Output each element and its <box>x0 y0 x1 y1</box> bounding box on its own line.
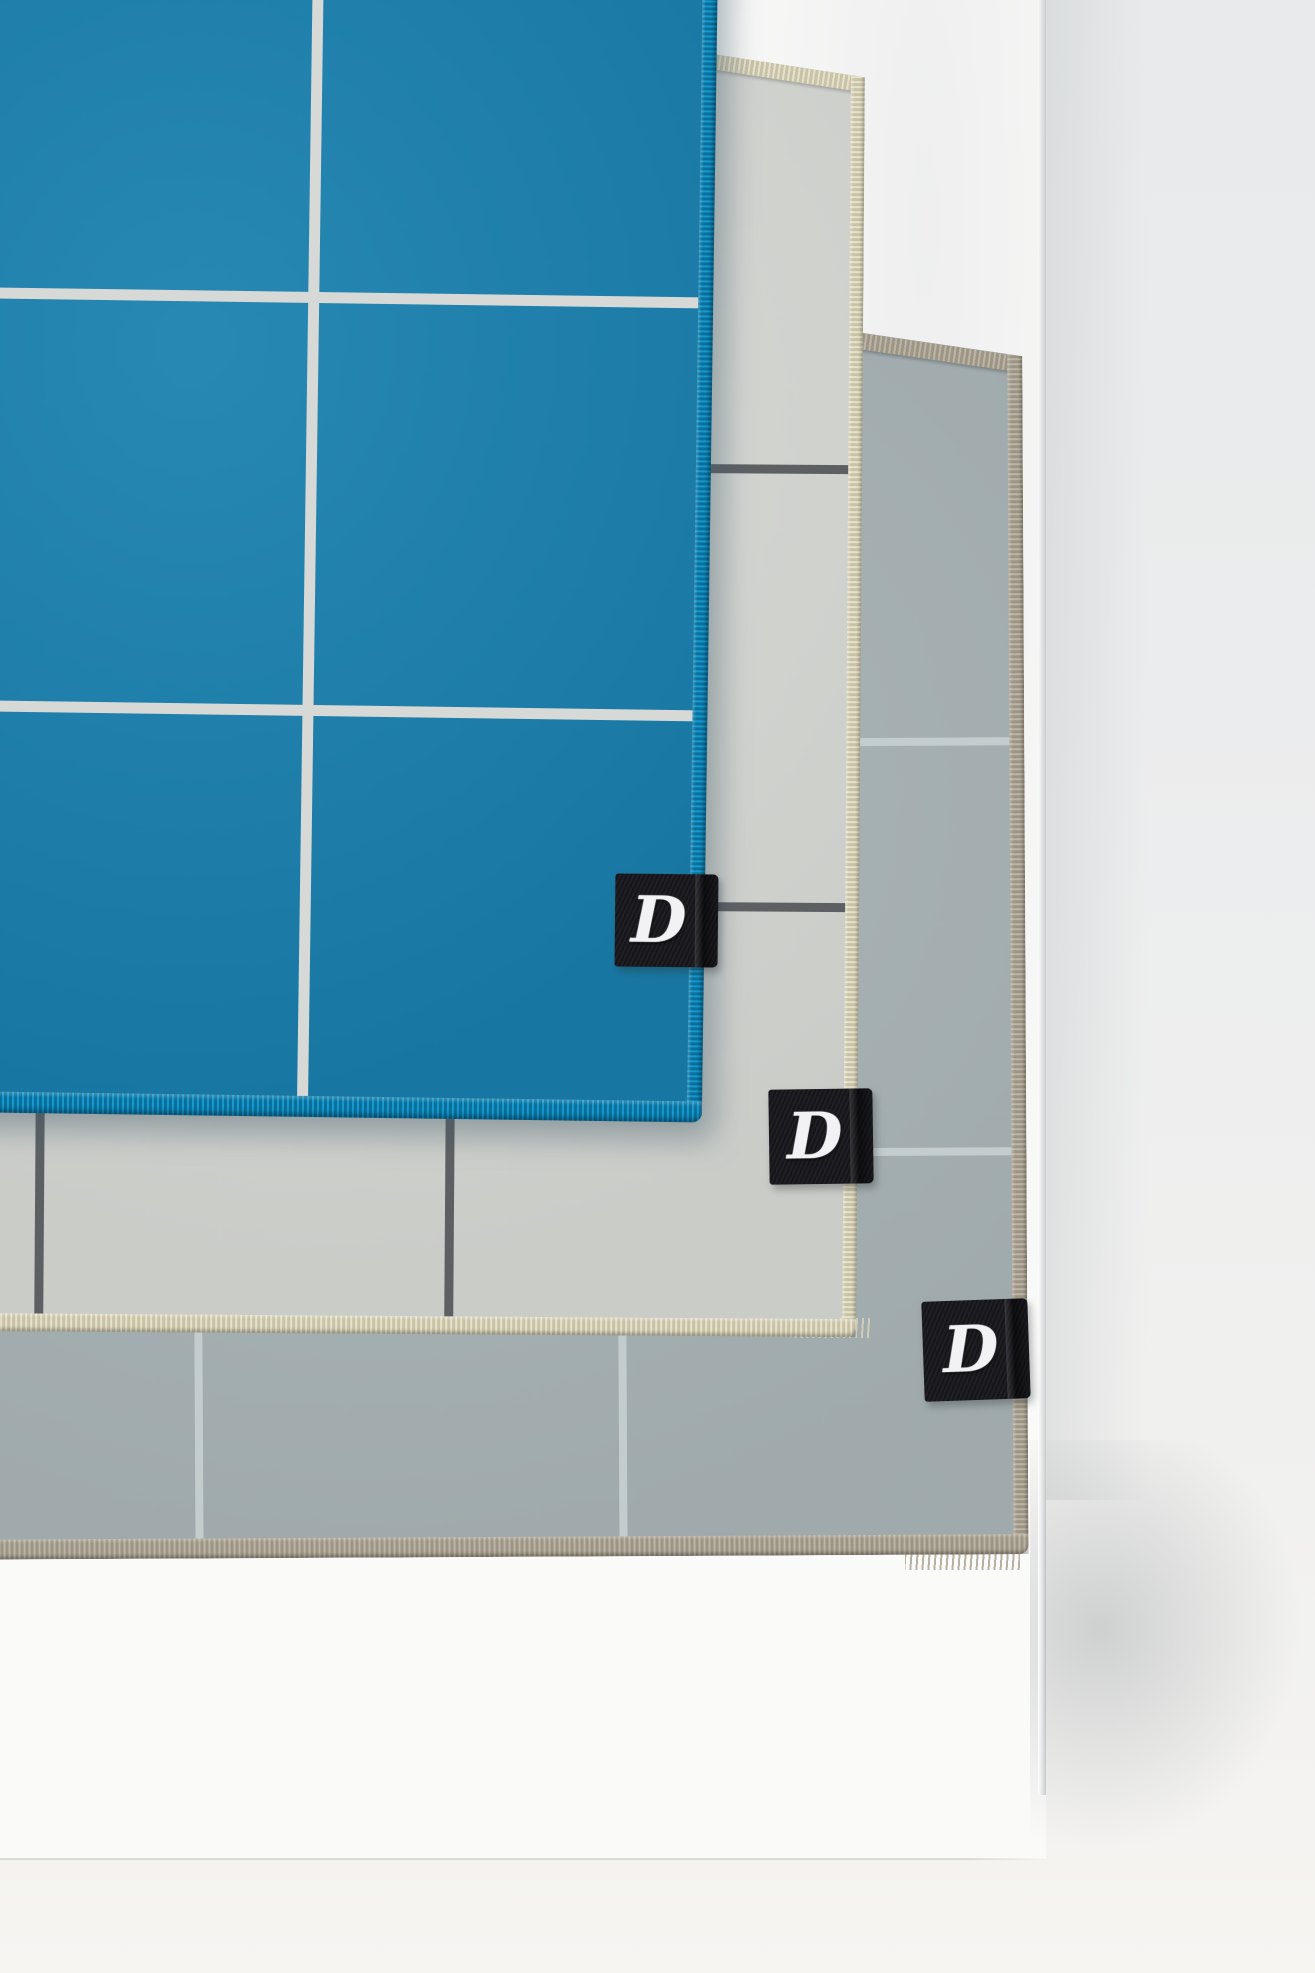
floor <box>0 1859 1315 1973</box>
product-photo: D D D <box>0 0 1315 1973</box>
brand-logo-d: D <box>787 1104 843 1169</box>
mat-teal-blue <box>0 0 718 1122</box>
brand-tag: D <box>768 1088 873 1184</box>
wall-corner-shading <box>1046 0 1166 1500</box>
board-floor-seam <box>0 1858 1048 1860</box>
brand-tag: D <box>921 1298 1030 1402</box>
brand-logo-d: D <box>631 888 687 953</box>
brand-logo-d: D <box>942 1317 1000 1383</box>
wall-cast-shadow <box>1030 1440 1310 1860</box>
brand-tag: D <box>615 873 719 967</box>
mat-teal-blue-fabric <box>0 0 703 1101</box>
